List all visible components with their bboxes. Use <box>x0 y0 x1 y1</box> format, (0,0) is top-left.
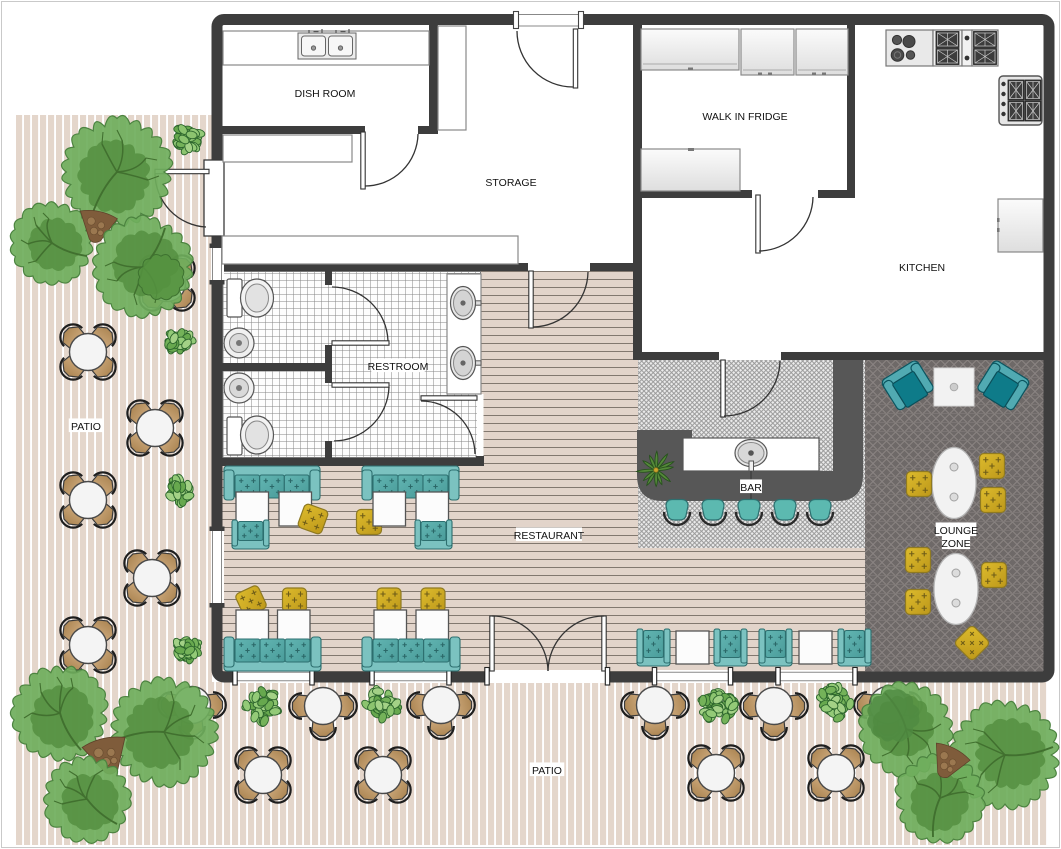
svg-text:PATIO: PATIO <box>71 421 101 433</box>
svg-text:RESTAURANT: RESTAURANT <box>514 530 585 542</box>
svg-text:STORAGE: STORAGE <box>485 177 536 189</box>
svg-text:DISH ROOM: DISH ROOM <box>295 88 356 100</box>
svg-text:RESTROOM: RESTROOM <box>368 361 429 373</box>
svg-text:LOUNGE: LOUNGE <box>934 525 978 537</box>
svg-text:PATIO: PATIO <box>532 765 562 777</box>
svg-text:BAR: BAR <box>740 482 762 494</box>
svg-text:ZONE: ZONE <box>941 538 970 550</box>
svg-text:WALK IN FRIDGE: WALK IN FRIDGE <box>702 111 787 123</box>
svg-text:KITCHEN: KITCHEN <box>899 262 945 274</box>
